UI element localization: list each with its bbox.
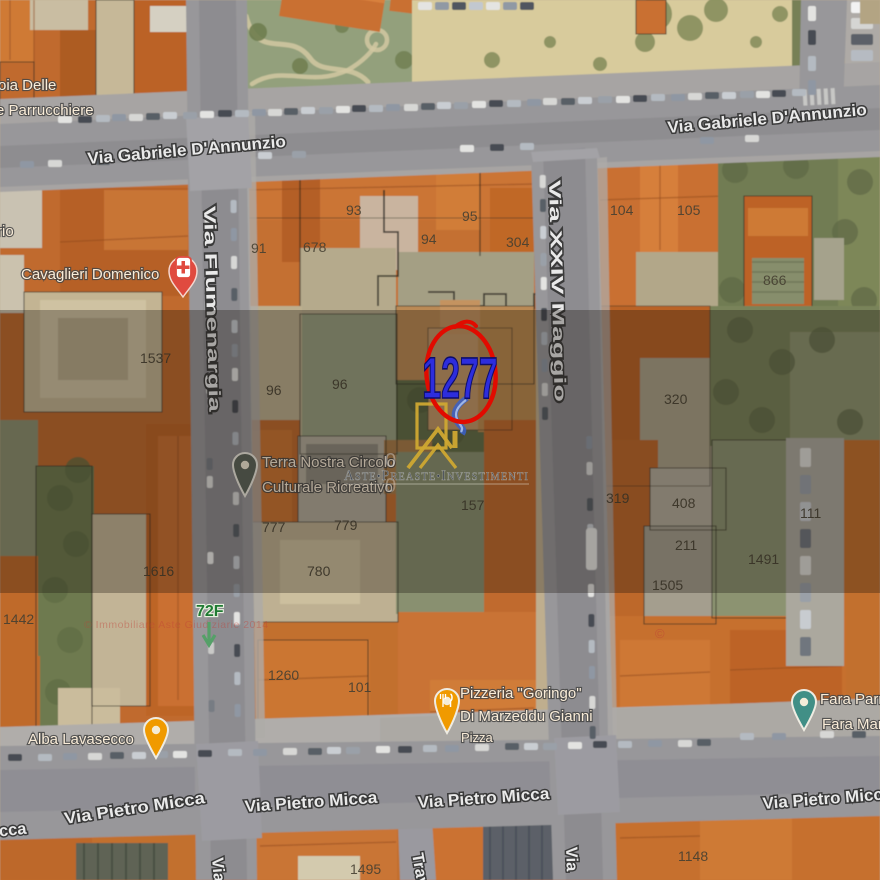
svg-text:Pizza: Pizza xyxy=(461,730,494,745)
svg-text:e Parrucchiere: e Parrucchiere xyxy=(0,102,94,119)
svg-text:Cavaglieri Domenico: Cavaglieri Domenico xyxy=(21,266,159,283)
svg-text:oia Delle: oia Delle xyxy=(0,77,56,94)
svg-text:72F: 72F xyxy=(196,603,224,620)
svg-text:93: 93 xyxy=(346,202,362,218)
svg-text:866: 866 xyxy=(763,272,787,288)
svg-text:©: © xyxy=(655,626,665,641)
svg-text:1260: 1260 xyxy=(268,667,299,683)
svg-text:1277: 1277 xyxy=(422,347,497,412)
svg-text:1442: 1442 xyxy=(3,611,34,627)
svg-text:© Immobiliare Aste Giudiziarie: © Immobiliare Aste Giudiziarie 2014 xyxy=(84,619,269,631)
svg-text:105: 105 xyxy=(677,202,701,218)
svg-text:Via: Via xyxy=(562,847,581,873)
svg-text:Alba Lavasecco: Alba Lavasecco xyxy=(28,731,134,748)
svg-text:104: 104 xyxy=(610,202,634,218)
svg-text:91: 91 xyxy=(251,240,267,256)
svg-text:Fara Mar: Fara Mar xyxy=(822,716,880,733)
svg-text:678: 678 xyxy=(303,239,327,255)
svg-text:Via: Via xyxy=(208,857,228,880)
svg-text:Di Marzeddu Gianni: Di Marzeddu Gianni xyxy=(460,708,593,725)
svg-text:1148: 1148 xyxy=(678,848,708,864)
svg-text:rio: rio xyxy=(0,223,14,240)
svg-text:95: 95 xyxy=(462,208,478,224)
svg-text:Fara Parr: Fara Parr xyxy=(820,691,880,708)
svg-text:Pizzeria "Goringo": Pizzeria "Goringo" xyxy=(460,685,582,702)
svg-text:304: 304 xyxy=(506,234,530,250)
svg-text:icca: icca xyxy=(0,820,28,841)
svg-text:ASTE•PREASTE•INVESTIMENTI: ASTE•PREASTE•INVESTIMENTI xyxy=(344,468,529,484)
svg-text:101: 101 xyxy=(348,679,372,695)
svg-text:94: 94 xyxy=(421,231,437,247)
svg-text:1495: 1495 xyxy=(350,861,381,877)
